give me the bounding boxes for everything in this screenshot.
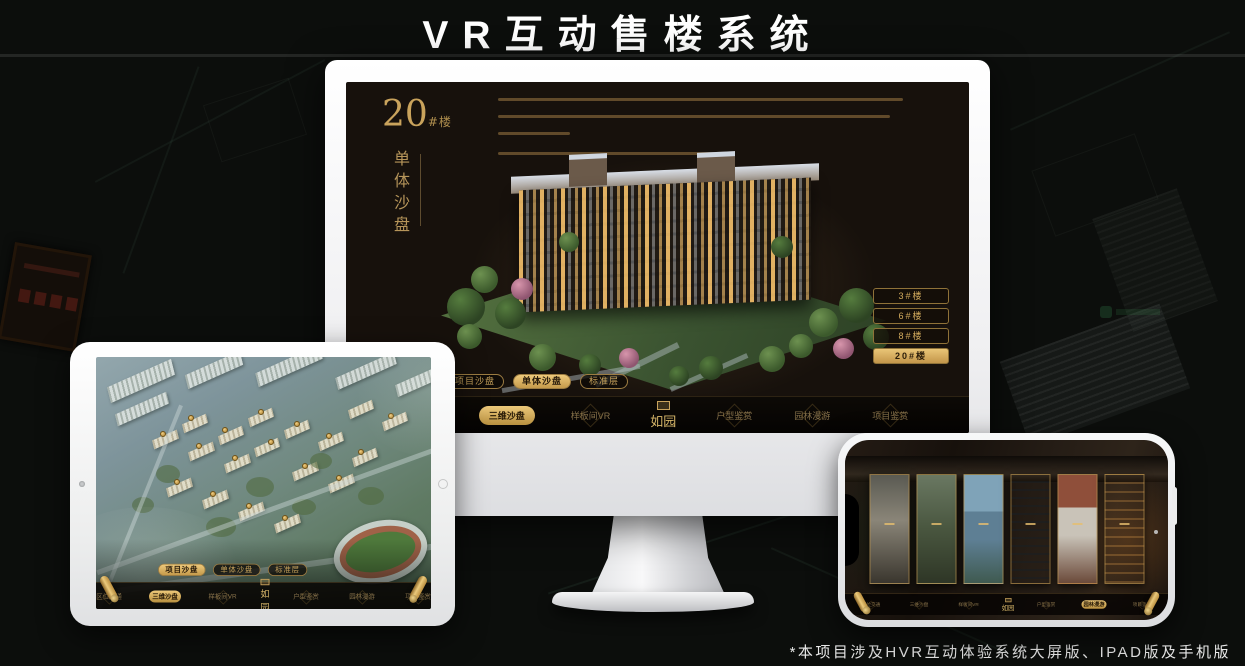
tablet-camera-icon bbox=[79, 481, 85, 487]
phone-device: 区位交通 三维沙盘 样板间VR 如园 户型鉴赏 园林漫游 项目鉴赏 bbox=[838, 433, 1175, 627]
logo-seal-icon bbox=[1005, 598, 1011, 602]
sand-table-subtabs: 项目沙盘 单体沙盘 标准层 bbox=[446, 374, 628, 389]
gallery-panel[interactable] bbox=[1010, 474, 1050, 584]
tablet-subtab-project-sandtable[interactable]: 项目沙盘 bbox=[158, 564, 206, 576]
phone-side-button[interactable] bbox=[1172, 487, 1177, 525]
gallery-panel[interactable] bbox=[1057, 474, 1097, 584]
subtitle-english-rule bbox=[420, 154, 421, 226]
background-developer-logo-text bbox=[1116, 309, 1160, 315]
phone-navbar: 区位交通 三维沙盘 样板间VR 如园 户型鉴赏 园林漫游 项目鉴赏 bbox=[845, 593, 1168, 615]
floor-button-20[interactable]: 20#楼 bbox=[873, 348, 949, 364]
nav-item-floorplans[interactable]: 户型鉴赏 bbox=[710, 406, 758, 425]
tablet-nav-logo[interactable]: 如园 bbox=[261, 579, 270, 609]
gallery-panel[interactable] bbox=[963, 474, 1003, 584]
phone-nav-item-garden-tour[interactable]: 园林漫游 bbox=[1082, 600, 1107, 609]
footnote-text: *本项目涉及HVR互动体验系统大屏版、IPAD版及手机版 bbox=[790, 641, 1231, 662]
tablet-home-button[interactable] bbox=[438, 479, 448, 489]
building-subtitle-vertical: 单体沙盘 bbox=[388, 150, 412, 238]
nav-item-showroom-vr[interactable]: 样板间VR bbox=[565, 406, 617, 425]
gallery-panel[interactable] bbox=[869, 474, 909, 584]
building-tower-cap bbox=[569, 153, 607, 187]
phone-nav-item-showroom-vr[interactable]: 样板间VR bbox=[957, 601, 981, 609]
phone-nav-logo[interactable]: 如园 bbox=[1002, 598, 1015, 612]
nav-item-project-gallery[interactable]: 项目鉴赏 bbox=[866, 406, 914, 425]
background-developer-logo-icon bbox=[1100, 306, 1112, 318]
tablet-device: 项目沙盘 单体沙盘 标准层 区位交通 三维沙盘 样板间VR 如园 户型鉴赏 园林… bbox=[70, 342, 455, 626]
nav-logo[interactable]: 如园 bbox=[650, 401, 676, 430]
floor-button-8[interactable]: 8#楼 bbox=[873, 328, 949, 344]
building-number-title: 20#楼 bbox=[382, 94, 452, 135]
phone-screen: 区位交通 三维沙盘 样板间VR 如园 户型鉴赏 园林漫游 项目鉴赏 bbox=[845, 440, 1168, 620]
tablet-nav-item-garden-tour[interactable]: 园林漫游 bbox=[346, 590, 378, 602]
floor-button-3[interactable]: 3#楼 bbox=[873, 288, 949, 304]
background-award-plaque bbox=[0, 242, 92, 352]
monitor-stand-base bbox=[552, 592, 754, 612]
tablet-nav-item-3d-sandtable[interactable]: 三维沙盘 bbox=[149, 590, 181, 602]
phone-nav-item-3d-sandtable[interactable]: 三维沙盘 bbox=[908, 601, 930, 609]
nav-item-garden-tour[interactable]: 园林漫游 bbox=[788, 406, 836, 425]
phone-nav-item-floorplans[interactable]: 户型鉴赏 bbox=[1035, 601, 1057, 609]
gallery-panel[interactable] bbox=[1104, 474, 1144, 584]
tablet-nav-item-showroom-vr[interactable]: 样板间VR bbox=[205, 590, 240, 602]
page-title: VR互动售楼系统 bbox=[0, 4, 1245, 60]
phone-camera-icon bbox=[1154, 530, 1158, 534]
tablet-subtab-standard-floor[interactable]: 标准层 bbox=[268, 564, 307, 576]
background-building-render bbox=[1000, 304, 1191, 447]
gallery-panel[interactable] bbox=[916, 474, 956, 584]
tablet-subtab-single-sandtable[interactable]: 单体沙盘 bbox=[213, 564, 261, 576]
logo-seal-icon bbox=[657, 401, 670, 410]
tablet-subtabs: 项目沙盘 单体沙盘 标准层 bbox=[158, 564, 307, 576]
panorama-gallery bbox=[869, 474, 1144, 584]
tablet-nav-item-floorplans[interactable]: 户型鉴赏 bbox=[290, 590, 322, 602]
floor-button-group: 3#楼 6#楼 8#楼 20#楼 bbox=[873, 288, 949, 364]
tablet-navbar: 区位交通 三维沙盘 样板间VR 如园 户型鉴赏 园林漫游 项目鉴赏 bbox=[96, 582, 431, 609]
logo-seal-icon bbox=[261, 579, 270, 585]
tablet-screen: 项目沙盘 单体沙盘 标准层 区位交通 三维沙盘 样板间VR 如园 户型鉴赏 园林… bbox=[96, 357, 431, 609]
subtab-single-sandtable[interactable]: 单体沙盘 bbox=[513, 374, 571, 389]
subtab-standard-floor[interactable]: 标准层 bbox=[580, 374, 628, 389]
phone-notch bbox=[845, 494, 859, 566]
nav-item-3d-sandtable[interactable]: 三维沙盘 bbox=[479, 406, 535, 425]
building-3d-render[interactable] bbox=[441, 140, 886, 398]
building-tower-cap bbox=[697, 151, 735, 185]
floor-button-6[interactable]: 6#楼 bbox=[873, 308, 949, 324]
